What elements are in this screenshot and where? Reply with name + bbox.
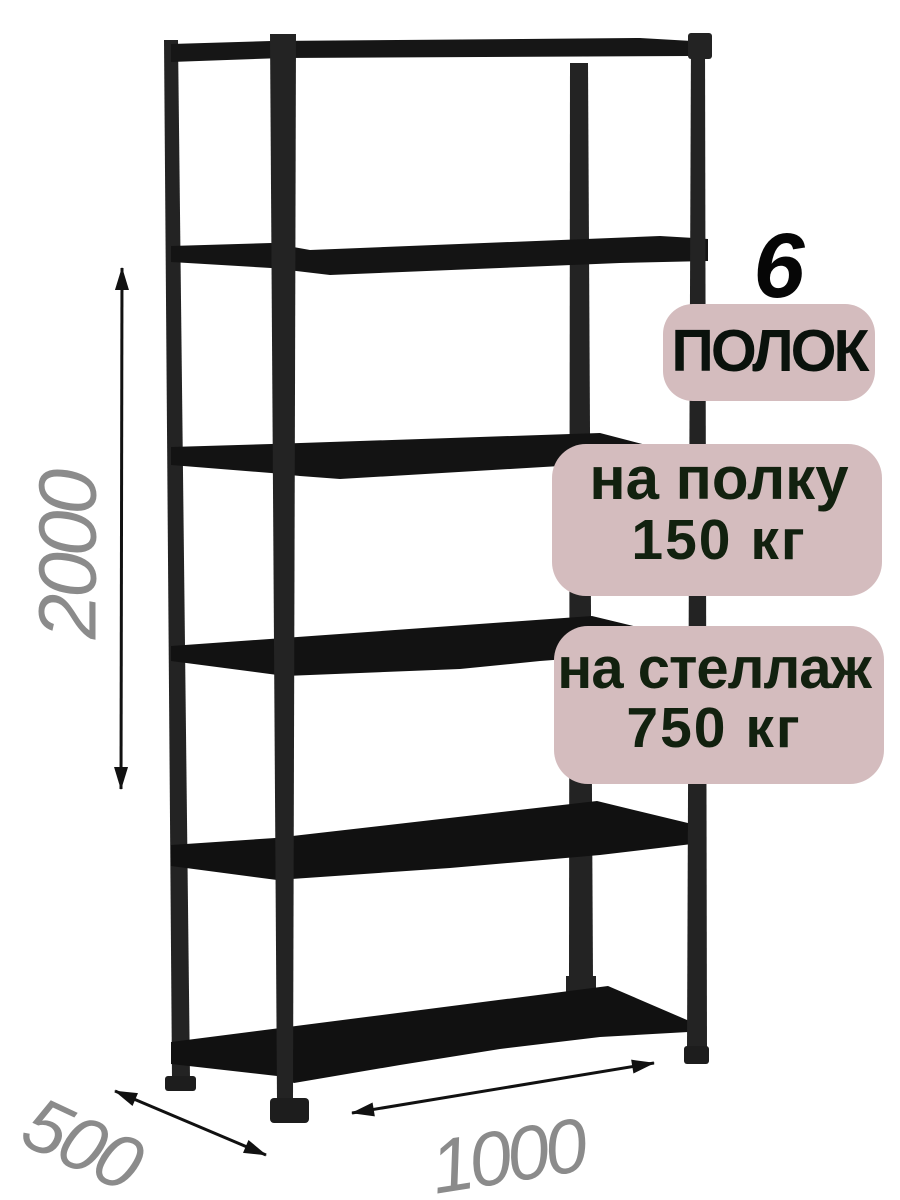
svg-text:150 кг: 150 кг [631,508,806,572]
svg-text:ПОЛОК: ПОЛОК [671,318,870,384]
svg-text:на стеллаж: на стеллаж [557,636,872,701]
svg-text:750 кг: 750 кг [626,696,801,760]
svg-text:на полку: на полку [589,445,849,512]
svg-text:2000: 2000 [23,469,114,640]
svg-text:6: 6 [753,215,805,317]
